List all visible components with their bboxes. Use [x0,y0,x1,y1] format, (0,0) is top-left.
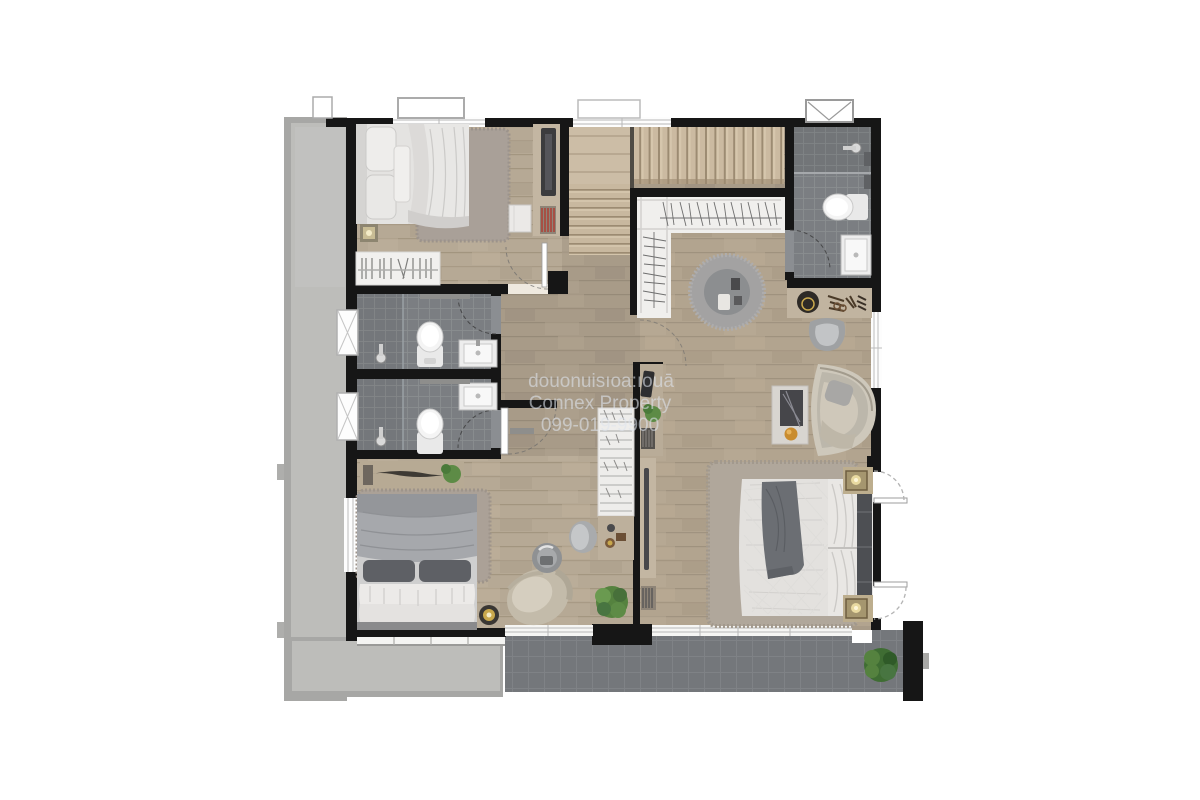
svg-text:099-019-9900: 099-019-9900 [541,415,659,436]
svg-text:douonuisıoa:ıouā: douonuisıoa:ıouā [528,371,674,392]
svg-text:Connex Property: Connex Property [529,393,672,414]
